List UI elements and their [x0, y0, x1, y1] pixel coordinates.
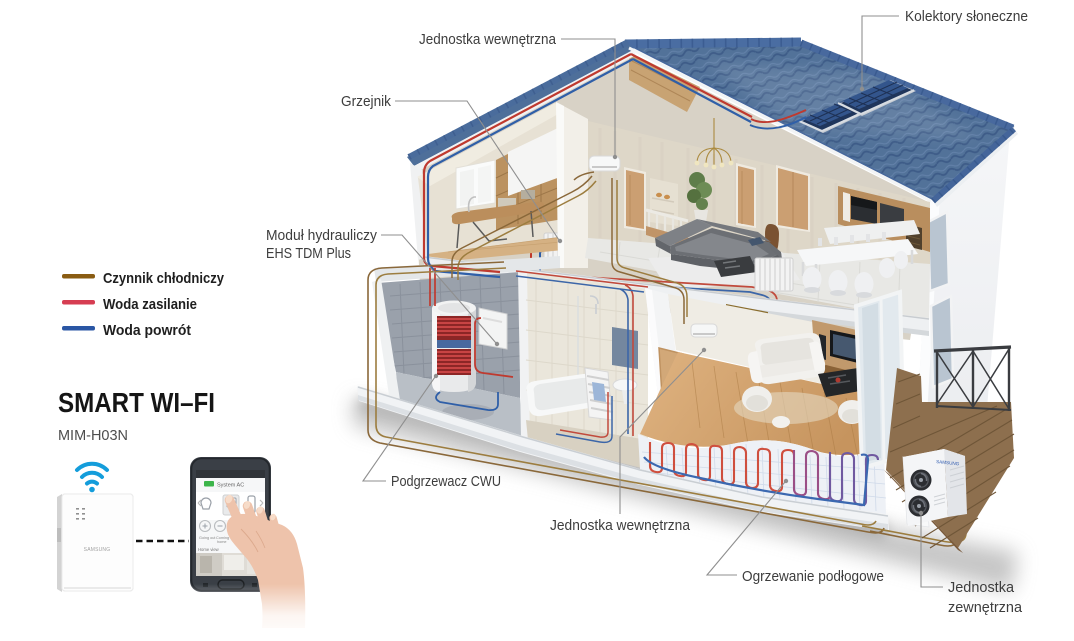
svg-text:Kolektory słoneczne: Kolektory słoneczne	[905, 8, 1028, 25]
svg-text:SAMSUNG: SAMSUNG	[84, 547, 111, 553]
svg-text:Woda powrót: Woda powrót	[103, 322, 191, 339]
svg-text:Going out: Going out	[199, 536, 216, 540]
svg-text:zewnętrzna: zewnętrzna	[948, 599, 1023, 616]
svg-text:Jednostka: Jednostka	[948, 579, 1015, 596]
svg-text:Ogrzewanie podłogowe: Ogrzewanie podłogowe	[742, 568, 884, 585]
svg-text:Woda zasilanie: Woda zasilanie	[103, 296, 197, 313]
svg-text:MIM-H03N: MIM-H03N	[58, 427, 128, 444]
svg-text:Home view: Home view	[198, 547, 220, 552]
svg-text:SMART WI–FI: SMART WI–FI	[58, 387, 215, 418]
svg-text:Jednostka wewnętrzna: Jednostka wewnętrzna	[550, 517, 691, 534]
svg-text:Czynnik chłodniczy: Czynnik chłodniczy	[103, 270, 225, 287]
svg-text:Grzejnik: Grzejnik	[341, 93, 391, 110]
svg-text:home: home	[217, 540, 227, 544]
svg-text:Moduł hydrauliczy: Moduł hydrauliczy	[266, 227, 377, 244]
svg-text:EHS TDM Plus: EHS TDM Plus	[266, 245, 351, 262]
svg-text:System AC: System AC	[217, 483, 244, 489]
svg-text:Jednostka wewnętrzna: Jednostka wewnętrzna	[419, 31, 557, 48]
svg-text:Podgrzewacz CWU: Podgrzewacz CWU	[391, 473, 501, 490]
